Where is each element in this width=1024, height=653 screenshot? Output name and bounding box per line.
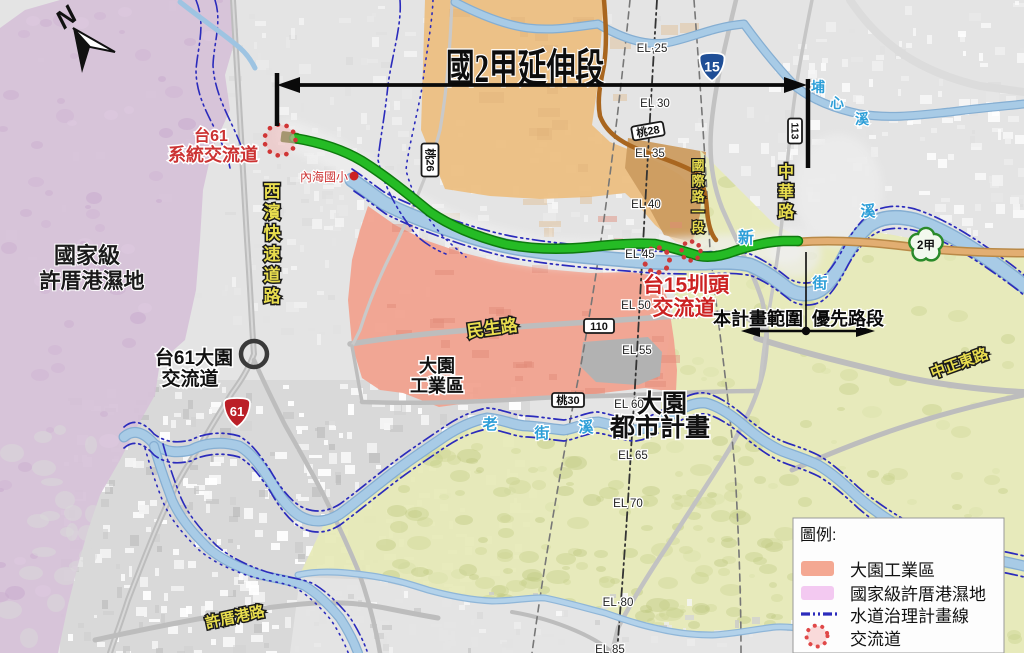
svg-text:華: 華 <box>778 182 794 201</box>
svg-text:EL 40: EL 40 <box>631 199 661 211</box>
svg-text:61: 61 <box>230 404 244 419</box>
svg-text:圖例:: 圖例: <box>800 526 836 544</box>
svg-text:路: 路 <box>691 189 705 204</box>
svg-text:工業區: 工業區 <box>410 375 464 396</box>
svg-text:系統交流道: 系統交流道 <box>168 144 258 165</box>
svg-text:路: 路 <box>778 202 795 221</box>
svg-text:EL 85: EL 85 <box>595 644 625 653</box>
svg-text:交流道: 交流道 <box>161 367 218 390</box>
svg-text:國: 國 <box>691 158 704 173</box>
svg-text:桃26: 桃26 <box>423 148 437 171</box>
svg-text:台61: 台61 <box>194 126 228 145</box>
svg-text:溪: 溪 <box>578 418 594 436</box>
svg-text:水道治理計畫線: 水道治理計畫線 <box>850 607 969 626</box>
svg-text:交流道: 交流道 <box>653 296 716 320</box>
svg-text:路: 路 <box>264 286 282 306</box>
svg-text:內海國小: 內海國小 <box>300 169 348 184</box>
svg-text:EL 70: EL 70 <box>613 498 643 510</box>
svg-text:EL 30: EL 30 <box>640 98 670 110</box>
svg-text:街: 街 <box>811 274 827 292</box>
svg-text:際: 際 <box>691 174 705 189</box>
svg-text:一: 一 <box>691 205 704 220</box>
svg-text:EL 35: EL 35 <box>635 148 665 160</box>
svg-text:110: 110 <box>590 321 608 333</box>
svg-text:交流道: 交流道 <box>850 630 901 649</box>
svg-text:老: 老 <box>481 415 497 433</box>
svg-text:EL 65: EL 65 <box>618 450 648 462</box>
svg-text:心: 心 <box>830 95 844 111</box>
svg-text:道: 道 <box>264 265 281 285</box>
svg-text:段: 段 <box>691 220 704 235</box>
svg-text:優先路段: 優先路段 <box>811 308 885 329</box>
svg-text:EL 50: EL 50 <box>621 300 651 312</box>
svg-text:113: 113 <box>788 123 800 140</box>
svg-text:溪: 溪 <box>855 111 870 127</box>
svg-text:EL 55: EL 55 <box>622 345 652 357</box>
svg-text:溪: 溪 <box>860 202 876 220</box>
svg-text:新: 新 <box>738 228 754 247</box>
svg-text:中: 中 <box>778 162 794 181</box>
svg-text:EL 60: EL 60 <box>614 399 644 411</box>
svg-text:速: 速 <box>264 244 281 264</box>
svg-text:EL·80: EL·80 <box>603 597 634 609</box>
svg-text:台61大園: 台61大園 <box>155 346 233 369</box>
svg-text:國家級: 國家級 <box>54 243 120 268</box>
svg-text:都市計畫: 都市計畫 <box>609 413 710 442</box>
svg-text:大園: 大園 <box>419 355 455 376</box>
svg-text:西: 西 <box>264 182 281 201</box>
svg-text:本計畫範圍: 本計畫範圍 <box>713 308 803 329</box>
svg-text:濱: 濱 <box>264 202 281 222</box>
svg-text:大園工業區: 大園工業區 <box>850 561 935 580</box>
svg-text:台15圳頭: 台15圳頭 <box>643 273 730 297</box>
svg-text:國家級許厝港濕地: 國家級許厝港濕地 <box>850 585 986 604</box>
svg-text:埔: 埔 <box>811 79 825 95</box>
svg-text:快: 快 <box>264 223 282 243</box>
svg-text:街: 街 <box>533 424 549 442</box>
svg-text:許厝港濕地: 許厝港濕地 <box>40 269 145 293</box>
svg-text:EL·25: EL·25 <box>637 43 668 55</box>
svg-text:15: 15 <box>704 59 720 75</box>
svg-text:EL 45: EL 45 <box>625 249 655 261</box>
svg-text:桃30: 桃30 <box>556 393 579 407</box>
svg-text:2甲: 2甲 <box>917 239 935 252</box>
